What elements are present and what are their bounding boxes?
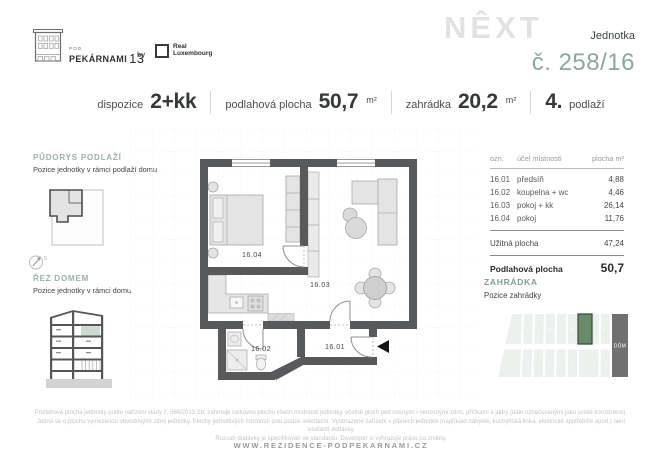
summary-zahradka: zahrádka 20,2 m² bbox=[406, 90, 516, 114]
room-label: 16.01 bbox=[325, 342, 345, 351]
coffee-table bbox=[346, 218, 367, 239]
building-icon bbox=[32, 27, 64, 63]
disclaimer-line-1: Podlahová plocha jednotky podle nařízení… bbox=[28, 409, 634, 418]
garden-section: ZAHRÁDKA Pozice zahrádky DŮM bbox=[484, 277, 644, 385]
nightstand bbox=[208, 182, 218, 192]
disclaimer: Podlahová plocha jednotky podle nařízení… bbox=[28, 409, 634, 443]
partner-name: Real Luxembourg bbox=[173, 44, 212, 58]
floor-plan-svg: 16.04 16.03 16.02 16.01 bbox=[130, 129, 475, 403]
unit-number: č. 258/16 bbox=[532, 49, 635, 77]
compass-label: S bbox=[44, 256, 48, 262]
divider bbox=[490, 230, 624, 231]
floor-plan: 16.04 16.03 16.02 16.01 bbox=[130, 129, 475, 403]
table-row: 16.04 pokoj 11,76 bbox=[490, 212, 624, 225]
divider bbox=[210, 91, 211, 114]
table-row: 16.03 pokoj + kk 26,14 bbox=[490, 199, 624, 212]
usable-area-row: Užitná plocha 47,24 bbox=[490, 237, 624, 250]
unit-highlight-shape bbox=[81, 326, 100, 335]
by-label: by bbox=[137, 52, 145, 59]
next-watermark: NÊXT bbox=[444, 10, 543, 46]
floor-area-row: Podlahová plocha 50,7 bbox=[490, 262, 624, 276]
divider bbox=[490, 168, 624, 169]
dining-table bbox=[364, 277, 387, 300]
section-section-subtitle: Pozice jednotky v rámci domu bbox=[33, 286, 131, 295]
wardrobe bbox=[308, 172, 319, 277]
floorplan-section-title: PŮDORYS PODLAŽÍ bbox=[33, 153, 122, 162]
website-link[interactable]: WWW.REZIDENCE-PODPEKARNAMI.CZ bbox=[0, 441, 662, 450]
divider bbox=[530, 91, 531, 114]
wardrobe bbox=[286, 176, 300, 242]
pillow bbox=[213, 198, 223, 218]
unit-block: Jednotka č. 258/16 bbox=[532, 30, 635, 77]
garden-subtitle: Pozice zahrádky bbox=[484, 291, 644, 300]
pillow bbox=[213, 222, 223, 242]
house-label: DŮM bbox=[614, 343, 626, 350]
stove bbox=[248, 296, 263, 311]
summary-dispozice: dispozice 2+kk bbox=[97, 90, 196, 114]
garden-position-map: DŮM bbox=[484, 307, 642, 385]
room-label: 16.02 bbox=[251, 344, 271, 353]
room-table: ozn. účel místnosti plocha m² 16.01 před… bbox=[490, 152, 624, 276]
floor-position-map bbox=[45, 186, 107, 248]
project-name: POD PEKÁRNAMI 13 bbox=[69, 47, 144, 64]
room-label: 16.04 bbox=[242, 250, 262, 259]
project-logo bbox=[32, 27, 64, 68]
table-header: ozn. účel místnosti plocha m² bbox=[490, 152, 624, 165]
room-label: 16.03 bbox=[310, 280, 330, 289]
divider bbox=[391, 91, 392, 114]
building-section-diagram bbox=[46, 302, 112, 388]
table-row: 16.02 koupelna + wc 4,46 bbox=[490, 186, 624, 199]
page-root: POD PEKÁRNAMI 13 by Real Luxembourg NÊXT… bbox=[0, 0, 662, 468]
summary-podlahova-plocha: podlahová plocha 50,7 m² bbox=[225, 90, 376, 114]
unit-label: Jednotka bbox=[532, 30, 635, 42]
nightstand bbox=[208, 248, 218, 258]
garden-title: ZAHRÁDKA bbox=[484, 277, 644, 287]
summary-podlazi: 4. podlaží bbox=[545, 90, 604, 114]
project-name-main: PEKÁRNAMI bbox=[69, 55, 127, 64]
sofa bbox=[378, 179, 397, 245]
garden-plot-highlight bbox=[578, 314, 592, 344]
disclaimer-line-2: Jedná se o plochu vymezenou obvodovými z… bbox=[28, 418, 634, 435]
partner-square-icon bbox=[155, 44, 169, 58]
summary-bar: dispozice 2+kk podlahová plocha 50,7 m² … bbox=[50, 90, 652, 114]
divider bbox=[490, 255, 624, 256]
washing-machine bbox=[228, 332, 241, 346]
partner-logo: Real Luxembourg bbox=[155, 44, 212, 58]
table-row: 16.01 předsíň 4,88 bbox=[490, 173, 624, 186]
compass-icon: S bbox=[27, 252, 53, 272]
section-section-title: ŘEZ DOMEM bbox=[33, 274, 89, 283]
